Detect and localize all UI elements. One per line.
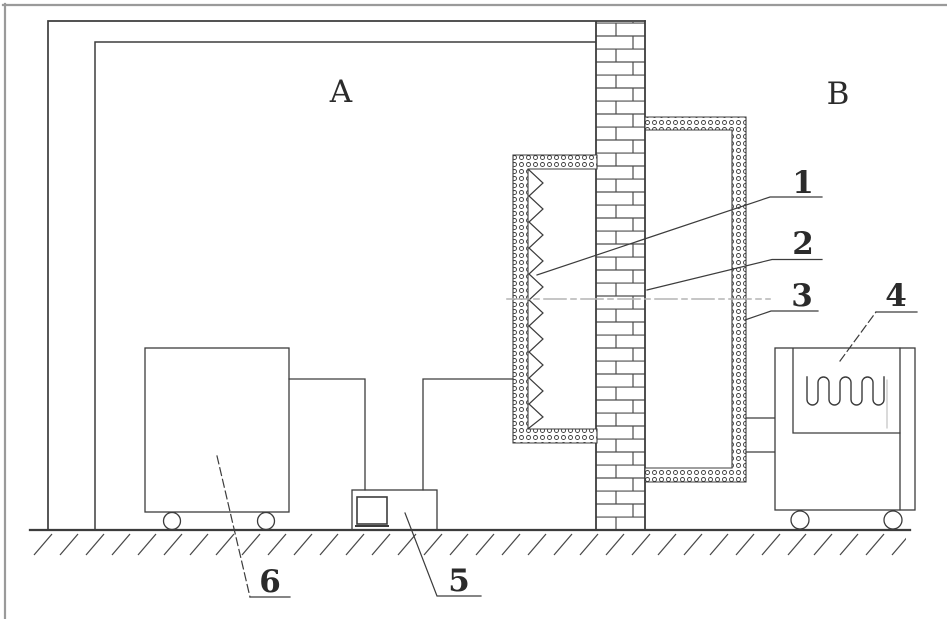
control-cabinet-wheel-left — [164, 513, 181, 530]
test-apparatus-diagram: A B 1 2 3 4 5 6 — [0, 0, 947, 619]
brick-test-wall — [596, 22, 645, 530]
cable-logger-to-hot-box — [423, 379, 513, 490]
callout-4-label: 4 — [885, 278, 907, 314]
callout-3-label: 3 — [791, 278, 813, 314]
refrigeration-unit-wheel-left — [791, 511, 809, 529]
callout-5-label: 5 — [448, 563, 470, 599]
callout-1-label: 1 — [792, 165, 814, 201]
ground-hatching — [32, 531, 906, 557]
refrigeration-unit-wheel-right — [884, 511, 902, 529]
callout-6-label: 6 — [259, 564, 281, 600]
control-cabinet-body — [145, 348, 289, 512]
leader-1-heater — [537, 197, 822, 275]
chamber-a-label: A — [329, 74, 353, 110]
diagram-page: A B 1 2 3 4 5 6 — [0, 0, 947, 619]
control-cabinet-wheel-right — [258, 513, 275, 530]
callout-2-label: 2 — [792, 226, 814, 262]
refrigeration-unit-body — [775, 348, 915, 510]
chamber-b-label: B — [827, 76, 850, 112]
cable-cabinet-to-logger — [289, 379, 365, 490]
